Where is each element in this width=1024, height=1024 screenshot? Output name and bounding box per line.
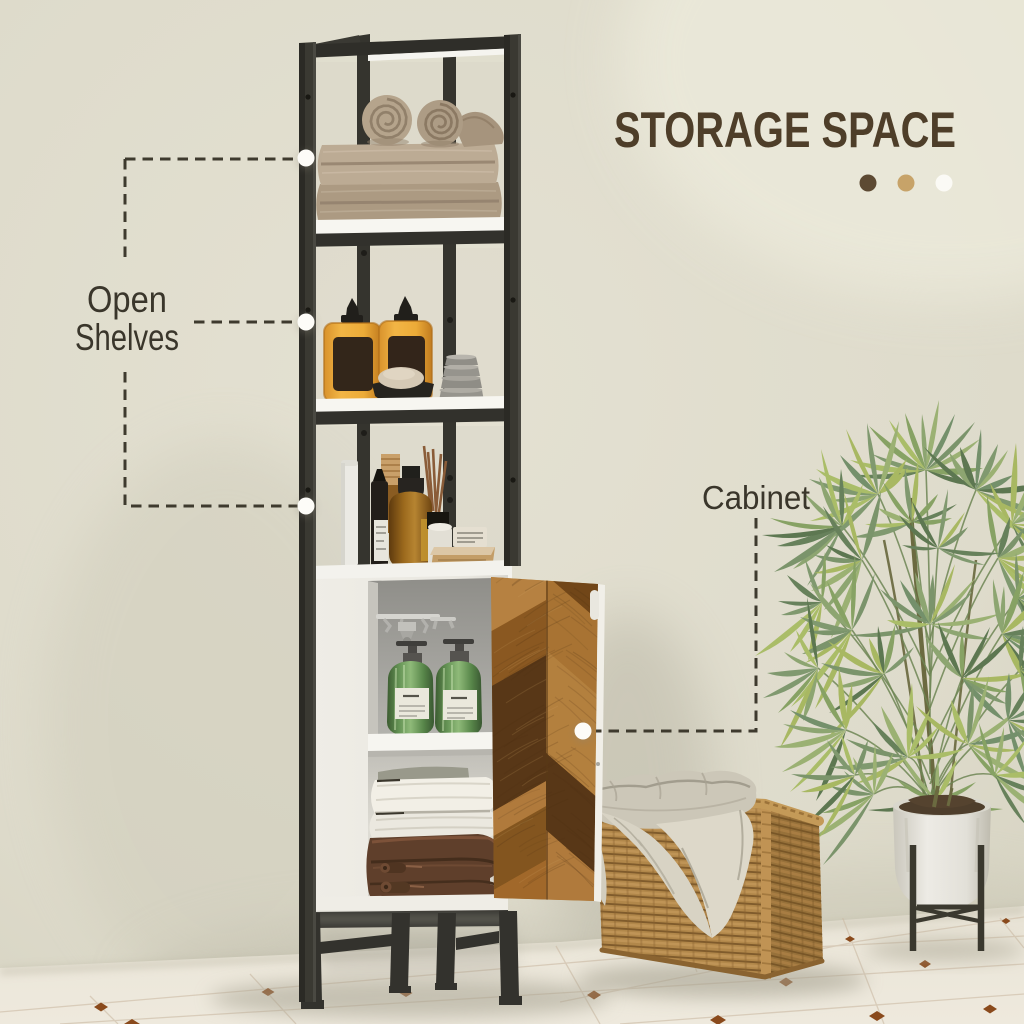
svg-text:Cabinet: Cabinet	[702, 479, 810, 516]
svg-text:STORAGE SPACE: STORAGE SPACE	[614, 102, 956, 158]
svg-text:Open: Open	[87, 279, 167, 320]
svg-text:Shelves: Shelves	[75, 317, 179, 358]
